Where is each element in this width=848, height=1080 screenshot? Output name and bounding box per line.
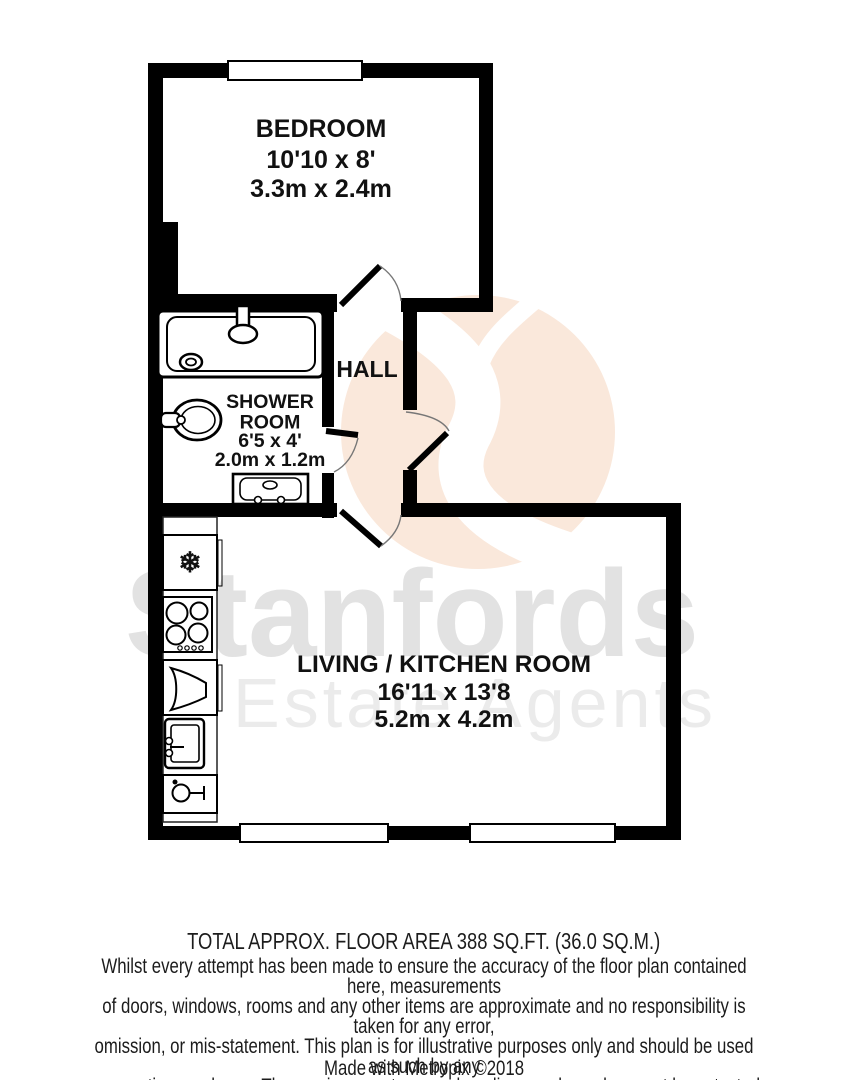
floorplan-page: Stanfords Estate Agents: [0, 0, 848, 1080]
disclaimer-line: Whilst every attempt has been made to en…: [85, 957, 763, 997]
entrance-door-arc: [406, 412, 449, 431]
floorplan-drawing: BEDROOM 10'10 x 8' 3.3m x 2.4m ❄ SHOWER …: [0, 0, 848, 1080]
wall: [148, 63, 163, 840]
living-door-arc: [381, 515, 401, 546]
sink-tap-dot2: [166, 750, 173, 757]
bedroom-dims-imperial: 10'10 x 8': [266, 146, 375, 174]
shower-door-arc: [334, 438, 358, 472]
bedroom-window: [228, 61, 362, 80]
toilet-hinge-right: [278, 497, 285, 504]
wall: [403, 312, 417, 410]
wall: [479, 63, 493, 312]
shower-label-line1: SHOWER: [226, 391, 314, 413]
disclaimer-line: of doors, windows, rooms and any other i…: [85, 997, 763, 1037]
living-window-left: [240, 824, 388, 842]
bedroom-dims-metric: 3.3m x 2.4m: [250, 175, 392, 203]
toilet-hinge-left: [255, 497, 262, 504]
living-dims-imperial: 16'11 x 13'8: [378, 679, 511, 706]
freezer-handle: [218, 540, 222, 586]
cabinet-handle: [218, 665, 222, 711]
living-label: LIVING / KITCHEN ROOM: [297, 651, 591, 678]
shower-dims-metric: 2.0m x 1.2m: [215, 449, 326, 471]
floor-area-summary: TOTAL APPROX. FLOOR AREA 388 SQ.FT. (36.…: [0, 928, 848, 955]
basin-tap-knob: [177, 416, 185, 424]
credit-line: Made with Metropix ©2018: [0, 1057, 848, 1080]
shower-head-icon: [229, 325, 257, 343]
living-dims-metric: 5.2m x 4.2m: [375, 706, 514, 733]
wall: [666, 503, 681, 840]
shower-door-leaf: [326, 431, 358, 435]
wall: [401, 298, 493, 312]
bedroom-door-leaf: [341, 266, 380, 305]
bath-drain: [180, 354, 202, 370]
entrance-door-leaf: [409, 433, 447, 470]
room-labels: BEDROOM 10'10 x 8' 3.3m x 2.4m ❄ SHOWER …: [178, 115, 591, 733]
wall: [401, 503, 681, 517]
bedroom-label: BEDROOM: [256, 115, 387, 143]
living-window-right: [470, 824, 615, 842]
hall-label: HALL: [336, 356, 397, 382]
freezer-icon: ❄: [178, 547, 201, 578]
bedroom-door-arc: [380, 266, 401, 301]
living-door-leaf: [341, 511, 381, 546]
sink-tap-dot1: [166, 738, 173, 745]
